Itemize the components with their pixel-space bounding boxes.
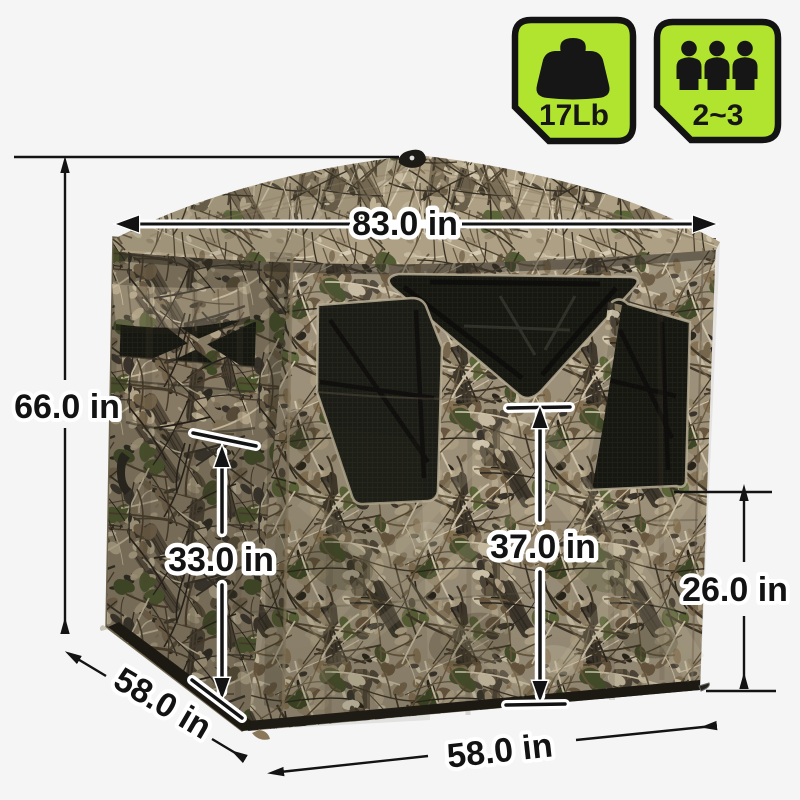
svg-text:17Lb: 17Lb [539, 99, 609, 132]
svg-text:26.0 in: 26.0 in [682, 571, 788, 609]
svg-text:33.0 in: 33.0 in [168, 541, 274, 579]
svg-text:83.0 in: 83.0 in [352, 205, 458, 243]
svg-text:66.0 in: 66.0 in [14, 388, 120, 426]
svg-text:37.0 in: 37.0 in [490, 528, 596, 566]
svg-text:2~3: 2~3 [693, 99, 744, 132]
